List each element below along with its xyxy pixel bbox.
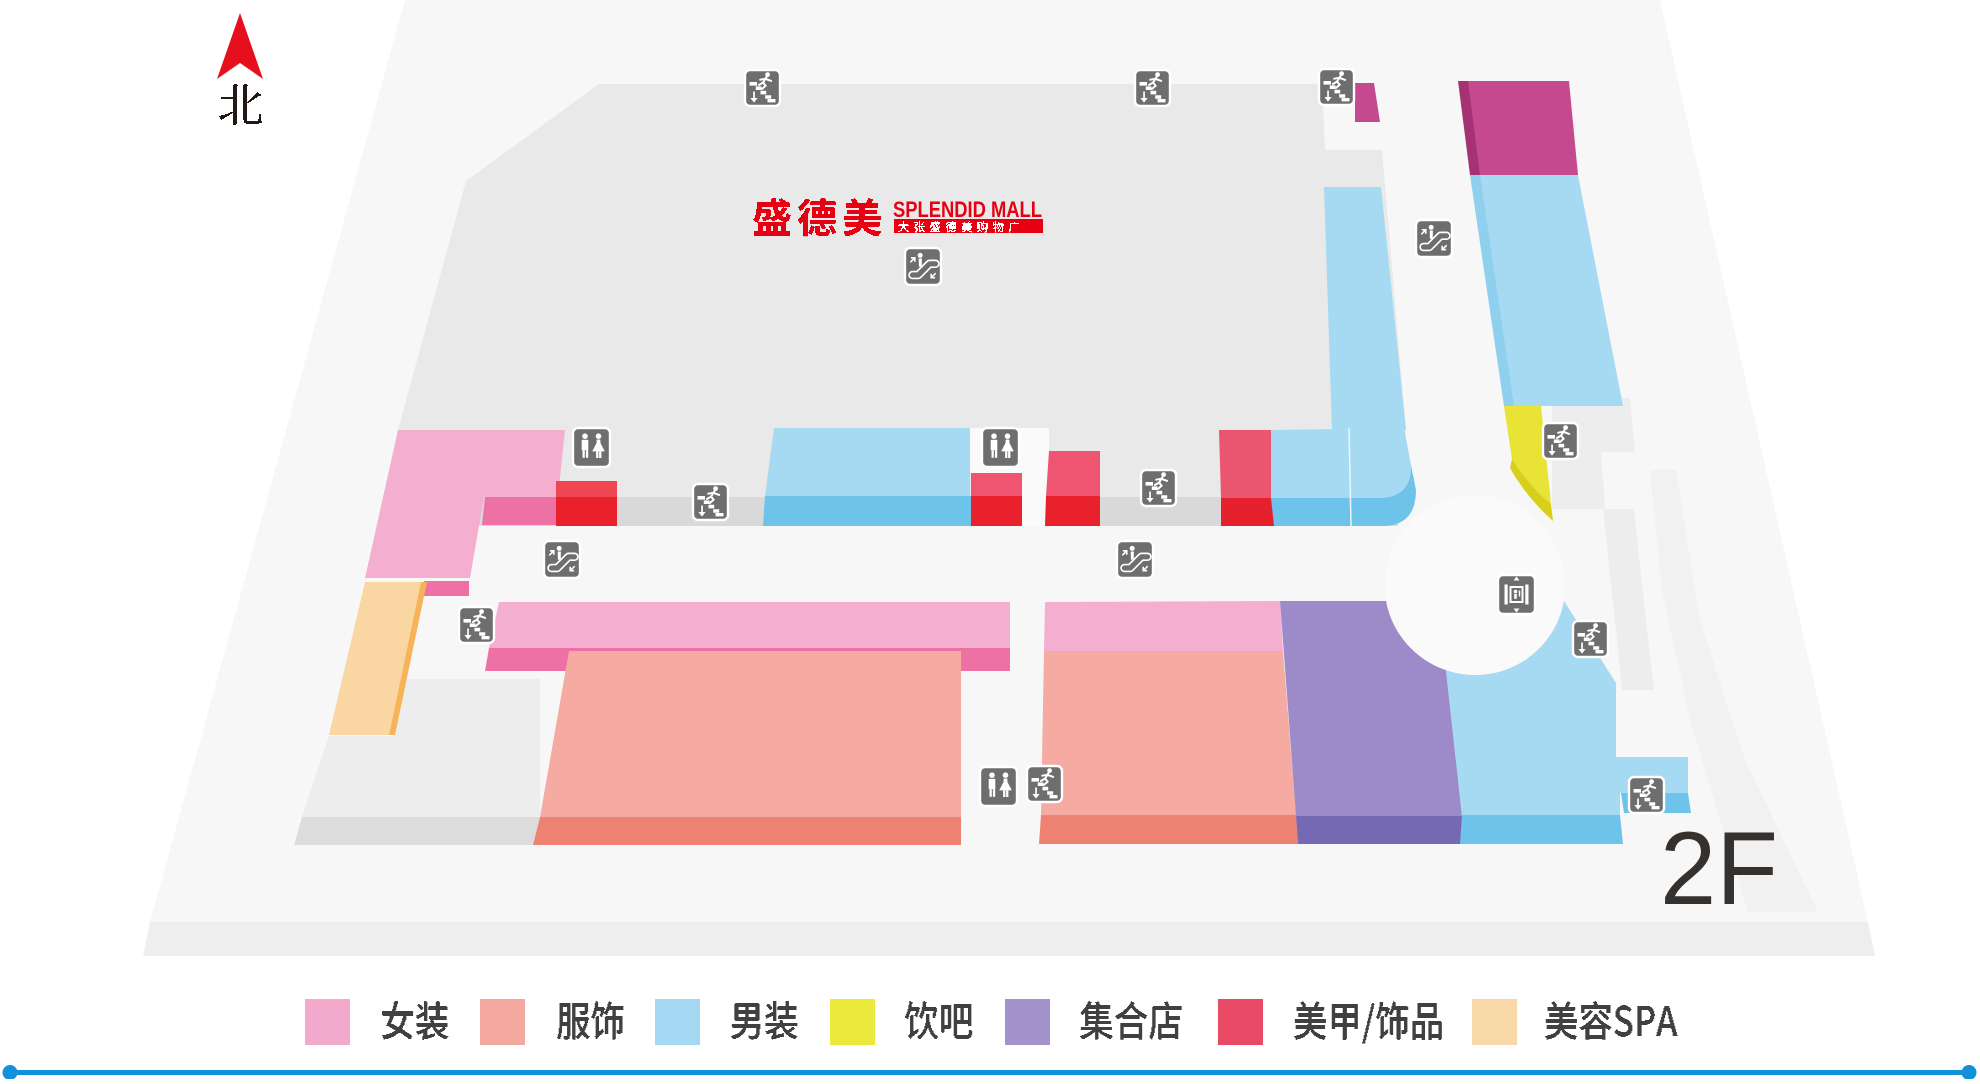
svg-text:SPLENDID MALL: SPLENDID MALL [893, 197, 1042, 222]
svg-text:2F: 2F [1660, 811, 1778, 927]
